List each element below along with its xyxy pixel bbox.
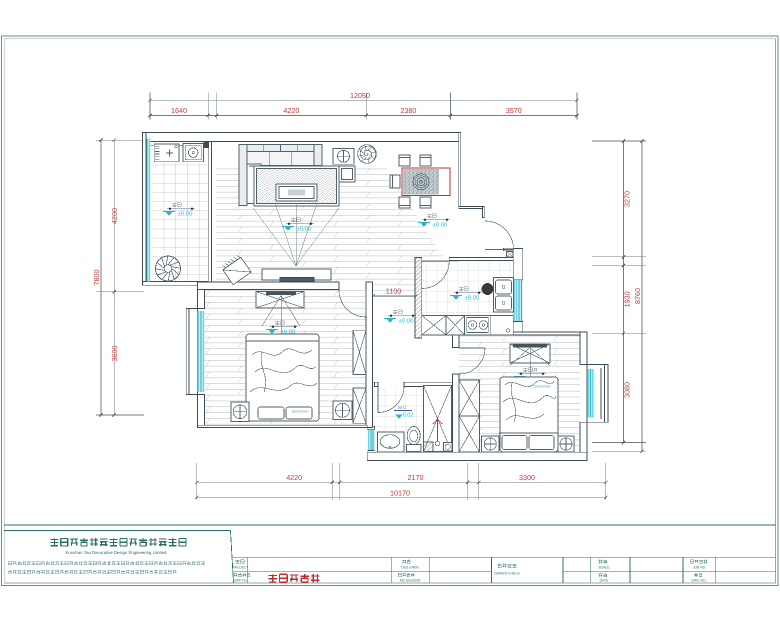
svg-text:10170: 10170 bbox=[390, 489, 410, 498]
svg-text:W.C: W.C bbox=[398, 405, 407, 410]
svg-text:JOB NO: JOB NO bbox=[693, 566, 706, 570]
svg-text:3270: 3270 bbox=[623, 191, 632, 207]
svg-text:±0.00: ±0.00 bbox=[297, 226, 313, 233]
svg-text:0.02: 0.02 bbox=[403, 413, 414, 419]
svg-text:DES GNER: DES GNER bbox=[401, 566, 419, 570]
svg-text:8760: 8760 bbox=[633, 288, 642, 304]
svg-text:OWNER CHECK: OWNER CHECK bbox=[494, 572, 521, 576]
svg-text:1800X2000: 1800X2000 bbox=[534, 385, 551, 389]
svg-text:12050: 12050 bbox=[350, 91, 370, 100]
svg-text:DWP No.: DWP No. bbox=[233, 579, 247, 583]
svg-text:1800X2000: 1800X2000 bbox=[292, 410, 309, 414]
svg-text:3570: 3570 bbox=[506, 106, 522, 115]
svg-text:3300: 3300 bbox=[519, 473, 535, 482]
svg-text:4220: 4220 bbox=[286, 473, 302, 482]
svg-text:3600: 3600 bbox=[110, 346, 119, 362]
svg-text:SCALE: SCALE bbox=[598, 566, 610, 570]
svg-text:±0.00: ±0.00 bbox=[178, 211, 194, 218]
svg-text:2380: 2380 bbox=[400, 106, 416, 115]
svg-text:7800: 7800 bbox=[92, 270, 101, 286]
svg-text:DATE: DATE bbox=[600, 579, 610, 583]
svg-text:±0.00: ±0.00 bbox=[465, 295, 481, 302]
svg-text:±0.00: ±0.00 bbox=[433, 222, 449, 229]
svg-text:Kunshan Yao Decorative Design: Kunshan Yao Decorative Design Engineerin… bbox=[66, 550, 167, 555]
svg-text:1930: 1930 bbox=[623, 291, 632, 307]
svg-text:4220: 4220 bbox=[283, 106, 299, 115]
svg-text:3080: 3080 bbox=[623, 382, 632, 398]
svg-text:MS DESGND: MS DESGND bbox=[400, 579, 421, 583]
svg-text:4200: 4200 bbox=[110, 208, 119, 224]
svg-text:±0.00: ±0.00 bbox=[399, 318, 415, 325]
svg-text:1640: 1640 bbox=[171, 106, 187, 115]
svg-text:DWG NO.: DWG NO. bbox=[691, 579, 706, 583]
svg-text:PROJECT: PROJECT bbox=[233, 566, 249, 570]
svg-text:2170: 2170 bbox=[408, 473, 424, 482]
